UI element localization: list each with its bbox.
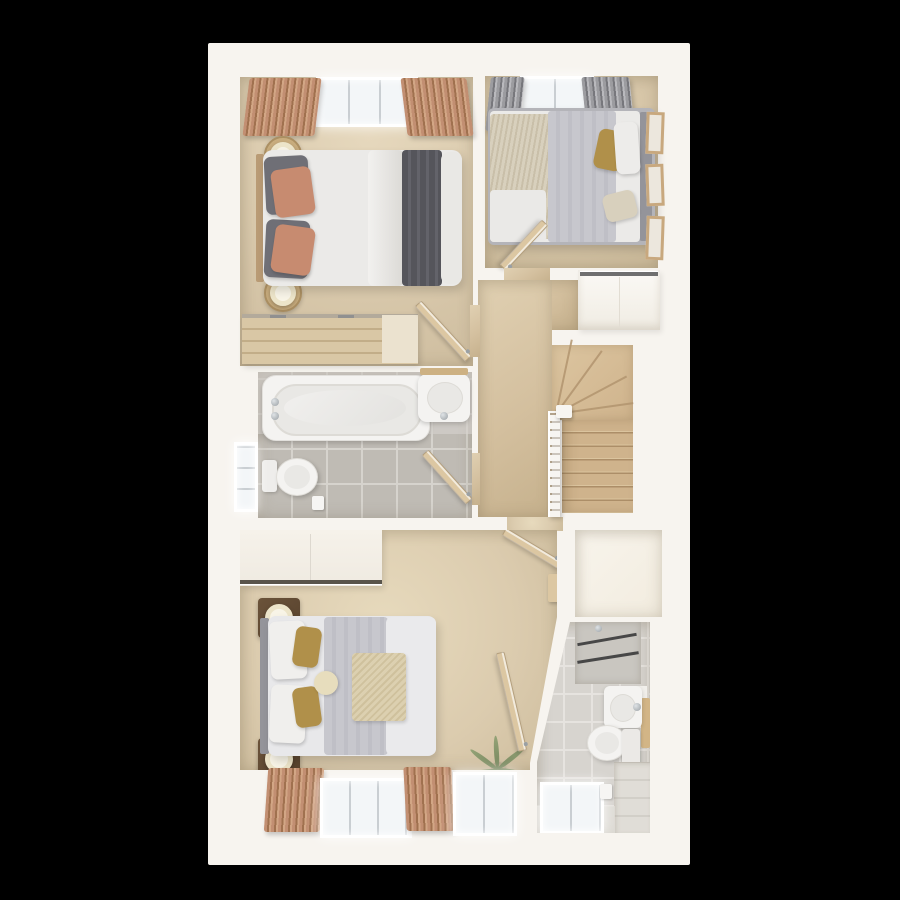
shower-glass-edge [577,633,637,646]
bedroom-1-floor [240,77,473,366]
master-curtain-right [403,767,454,831]
wardrobe-rail [240,580,382,584]
tap-icon [440,412,448,420]
toilet-roll [312,496,324,510]
towel-stack [600,784,612,799]
shower [575,622,641,684]
picture-frames [646,112,664,264]
stairs-steps [562,420,633,513]
picture-frame [645,216,665,261]
sink-bowl [610,694,636,722]
wood-shelf [420,368,468,375]
wardrobe-seam [310,534,311,580]
pillow [270,165,316,218]
canvas [0,0,900,900]
landing-floor [478,280,552,517]
toilet-seat [595,732,619,754]
bathtub [262,375,430,441]
pillow-gold [291,625,322,668]
master-window-right [453,772,517,836]
newel-post [556,405,572,418]
master-window-left [320,778,412,838]
banister [548,411,560,517]
textured-throw [352,653,406,721]
duvet-fold [368,150,404,286]
picture-frame [645,112,664,155]
double-bed [256,150,462,286]
master-bedroom-floor [240,530,557,770]
dresser-handle [270,315,286,318]
tap-icon [271,398,279,406]
tap-icon [633,703,641,711]
bathroom-window [234,442,258,512]
side-cabinet [548,574,566,602]
dresser [242,314,418,364]
closet-floor [575,530,662,617]
shower-head-icon [595,625,602,632]
bathtub-basin [284,390,406,426]
bathroom-door [422,449,473,504]
master-curtain-left [264,768,324,832]
bedroom-1-door [415,300,472,361]
bedroom-1-curtain-right [400,78,473,136]
shower-glass-edge [577,651,639,664]
pillow [613,121,641,175]
ensuite-floor [537,622,650,833]
toilet-seat [284,465,310,489]
tiled-ledge [614,762,650,833]
dresser-light-unit [382,315,418,363]
pillow [270,223,316,276]
dresser-handle [338,315,354,318]
storage-cupboard [578,270,660,330]
toilet [276,458,318,496]
round-pillow [314,671,338,695]
duvet-end [441,152,462,284]
picture-frame [645,164,664,207]
wardrobe [240,530,382,586]
bedroom-1-doorway [470,305,480,357]
floor-plan [208,43,690,865]
tap-icon [271,412,279,420]
sink-bowl [427,382,463,414]
bedroom-2-floor [485,76,658,268]
cupboard-rail [580,271,658,276]
bed-throw [402,150,442,286]
ensuite-window [540,782,604,834]
ensuite-sink [604,686,642,728]
cupboard-seam [619,277,620,327]
master-doorway [507,517,563,531]
master-bedroom-door [502,528,562,569]
bathroom-floor [258,372,472,518]
single-bed [488,108,655,245]
master-bed [260,615,436,757]
toilet-cistern [262,460,277,492]
basin-sink [418,374,470,422]
ensuite-toilet [587,725,627,761]
bedroom-1-curtain-left [242,78,321,136]
wood-shelf [641,698,650,748]
